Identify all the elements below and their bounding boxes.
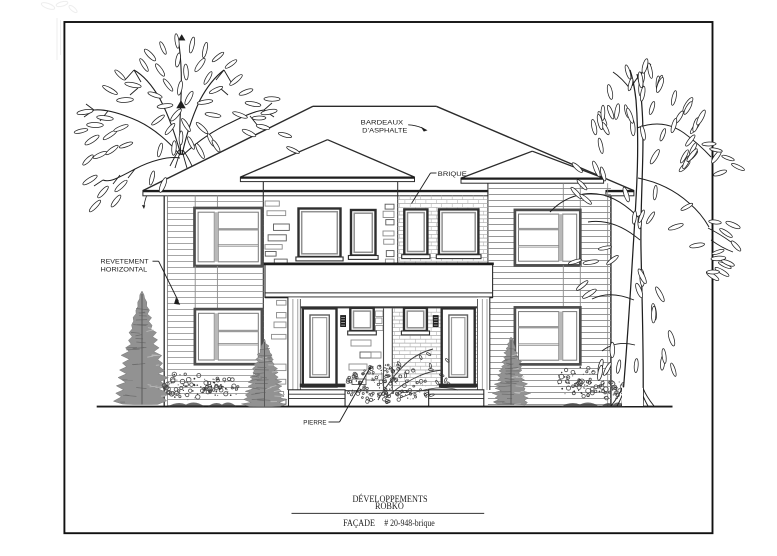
svg-text:BRIQUE: BRIQUE [438, 171, 468, 178]
svg-text:FAÇADE: FAÇADE [343, 519, 375, 529]
svg-text:BARDEAUX: BARDEAUX [361, 120, 404, 127]
svg-text:# 20-948-brique: # 20-948-brique [384, 519, 434, 529]
svg-text:PIERRE: PIERRE [303, 420, 327, 427]
svg-text:ROBKO: ROBKO [375, 502, 404, 512]
svg-text:HORIZONTAL: HORIZONTAL [101, 266, 148, 273]
svg-text:REVETEMENT: REVETEMENT [101, 259, 149, 266]
svg-text:D’ASPHALTE: D’ASPHALTE [362, 127, 408, 134]
